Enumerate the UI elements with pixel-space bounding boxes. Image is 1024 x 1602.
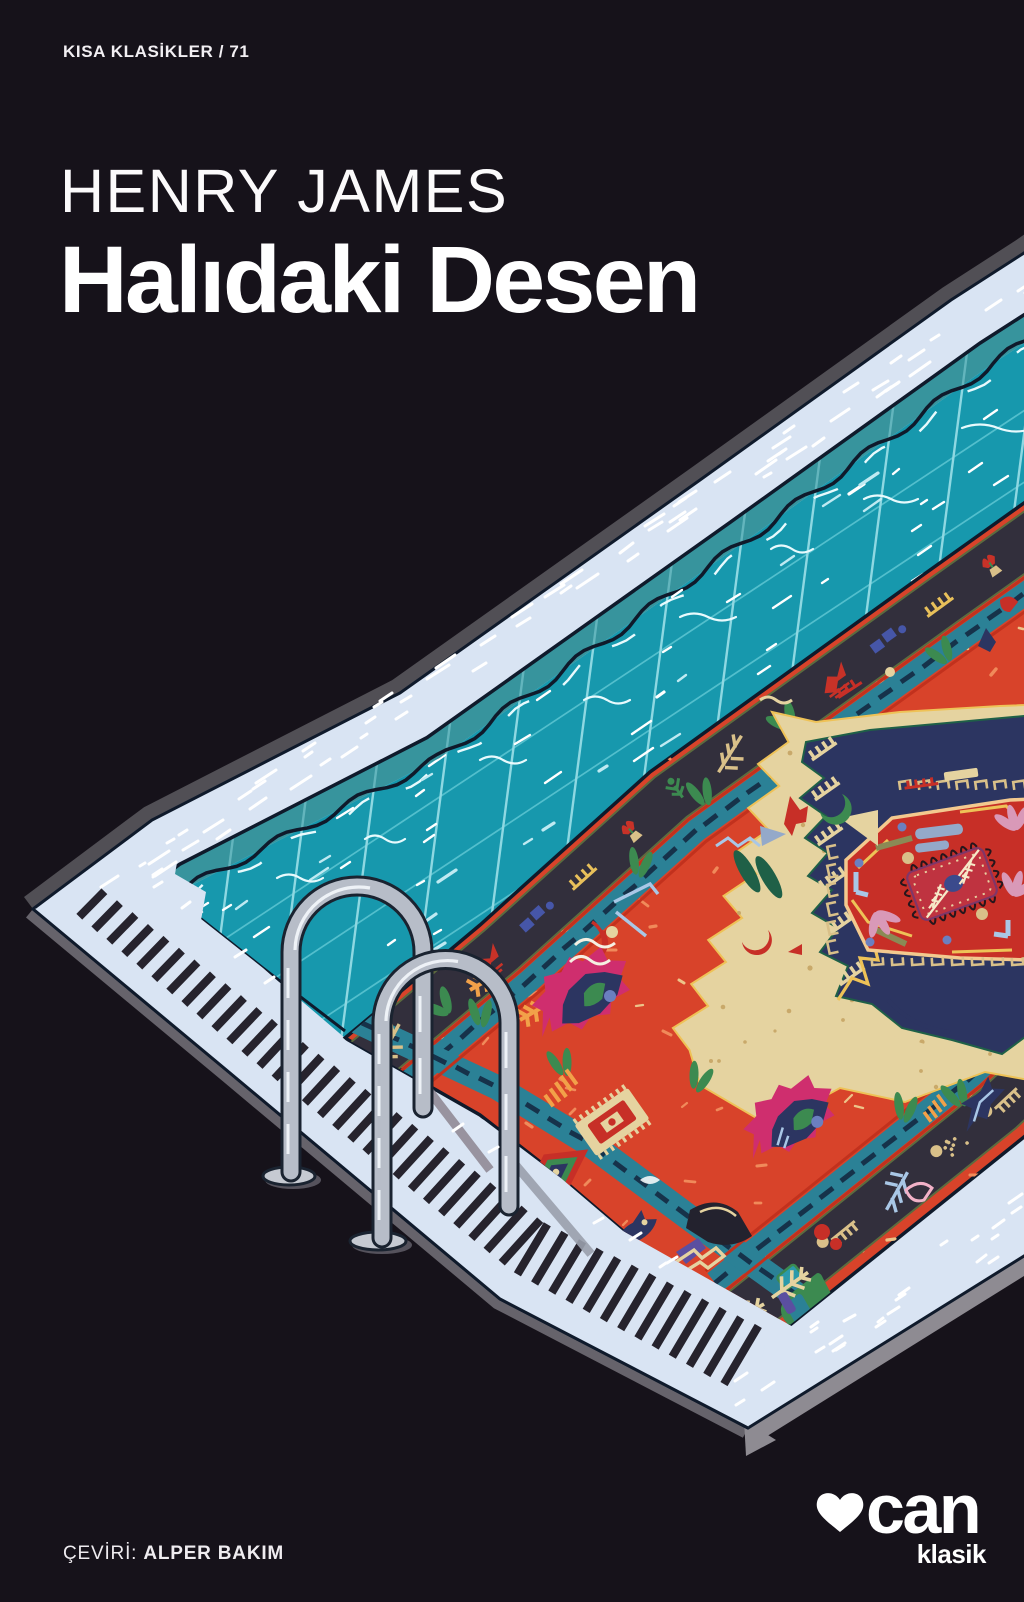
svg-text:klasik: klasik xyxy=(917,1539,987,1569)
